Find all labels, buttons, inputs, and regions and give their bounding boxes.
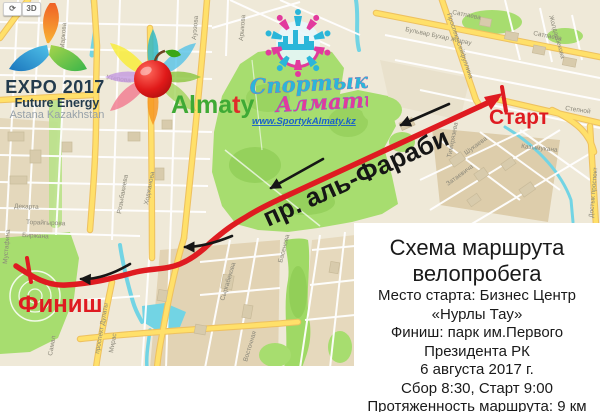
street-label: Биржана [22,232,49,240]
info-line: Протяженность маршрута: 9 км [354,398,600,412]
info-line: «Нурлы Тау» [354,306,600,325]
sportyk-website: www.SportykAlmaty.kz [252,116,356,127]
expo-title: EXPO 2017 [5,77,105,97]
sportyk-word2: Алматы [273,86,368,117]
info-line: Место старта: Бизнес Центр [354,287,600,306]
expo-tagline: Astana Kazakhstan [10,109,105,121]
info-line: Сбор 8:30, Старт 9:00 [354,380,600,399]
route-poster: СатпаеваСатпаеваБульвар Бухар ЖырауПросп… [0,0,600,412]
expo-subtitle: Future Energy [15,96,100,110]
info-box: Схема маршрута велопробега Место старта:… [354,223,600,412]
info-title-line1: Схема маршрута [354,235,600,261]
mode-3d-label: 3D [26,5,36,13]
sportyk-people-ring [264,9,331,77]
mode-3d-button[interactable]: 3D [22,2,41,16]
compass-button[interactable]: ⟳ [3,2,22,16]
sportyk-almaty-logo: Спортык Алматы www.SportykAlmaty.kz [238,6,368,128]
start-label: Старт [489,106,549,129]
compass-icon: ⟳ [9,5,16,13]
info-line: Президента РК [354,343,600,362]
info-line: 6 августа 2017 г. [354,361,600,380]
street-label: Декарта [14,203,39,211]
info-line: Финиш: парк им.Первого [354,324,600,343]
finish-label: Финиш [18,291,103,318]
info-title-line2: велопробега [354,261,600,287]
street-label: Торайгырова [26,218,66,227]
